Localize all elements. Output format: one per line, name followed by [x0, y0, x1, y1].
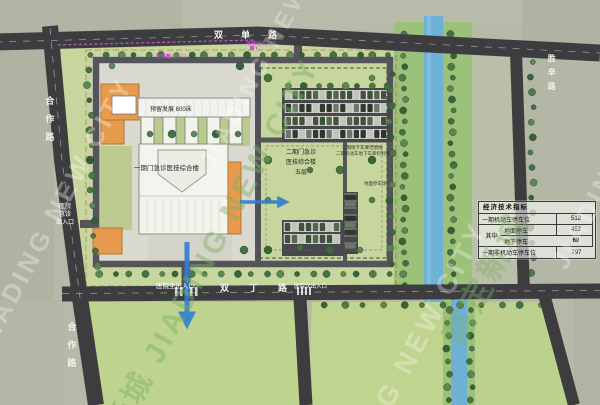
surface-parking-label: 地面停车场: [364, 181, 387, 186]
table-row-value: 797: [557, 247, 593, 258]
metro-entrance-label: 地铁站出入口: [156, 55, 186, 61]
table-row-label: 一期机动车停车位: [479, 214, 557, 225]
table-row-value: 452: [557, 225, 593, 236]
table-row-label: 地面停车: [501, 225, 557, 236]
phase2-building-label: 二期门急诊 医技综合楼 五层: [272, 148, 330, 179]
road-name-left-lower: 合作路: [66, 322, 76, 376]
secondary-entrance-label: 医院次出入口: [294, 284, 327, 290]
main-entrance-label: 医院主出入口: [156, 283, 195, 290]
table-group-label: 其中: [479, 225, 501, 247]
callout-box: [112, 96, 136, 114]
reserved-expansion-label: 预留发展 600床: [150, 107, 192, 114]
west-emergency-entrance-label: 医院 急诊 出入口: [52, 204, 78, 227]
road-name-top: 双单路: [214, 30, 295, 40]
table-row-label: 一期非机动车停车位: [479, 247, 557, 258]
south-canal: [451, 296, 467, 405]
indicator-table: 经济技术指标 一期机动车停车位 512 其中 地面停车 452 地下停车 60 …: [478, 201, 596, 259]
garage-boundary-note-2: 二期机动车地下车库控制线: [336, 151, 390, 156]
road-name-right: 胜辛路: [547, 54, 556, 96]
table-row-label: 地下停车: [501, 236, 557, 247]
entrance-plaza: [148, 236, 232, 264]
garage-boundary-note-1: 二期地下车库范围线: [342, 145, 383, 150]
table-row-value: 60: [557, 236, 593, 247]
site-plan-screenshot: 双单路 双丁路 合作路 合作路 胜辛路 预留发展 600床 一期门急诊医技综合楼…: [0, 0, 600, 405]
table-row-value: 512: [557, 214, 593, 225]
indicator-table-title: 经济技术指标: [479, 202, 595, 214]
phase1-building-label: 一期门急诊医技综合楼: [134, 165, 199, 172]
road-name-left: 合作路: [44, 96, 54, 150]
metro-entrance-label: 地铁站出入口: [246, 42, 276, 48]
orange-wing-east: [228, 162, 241, 234]
